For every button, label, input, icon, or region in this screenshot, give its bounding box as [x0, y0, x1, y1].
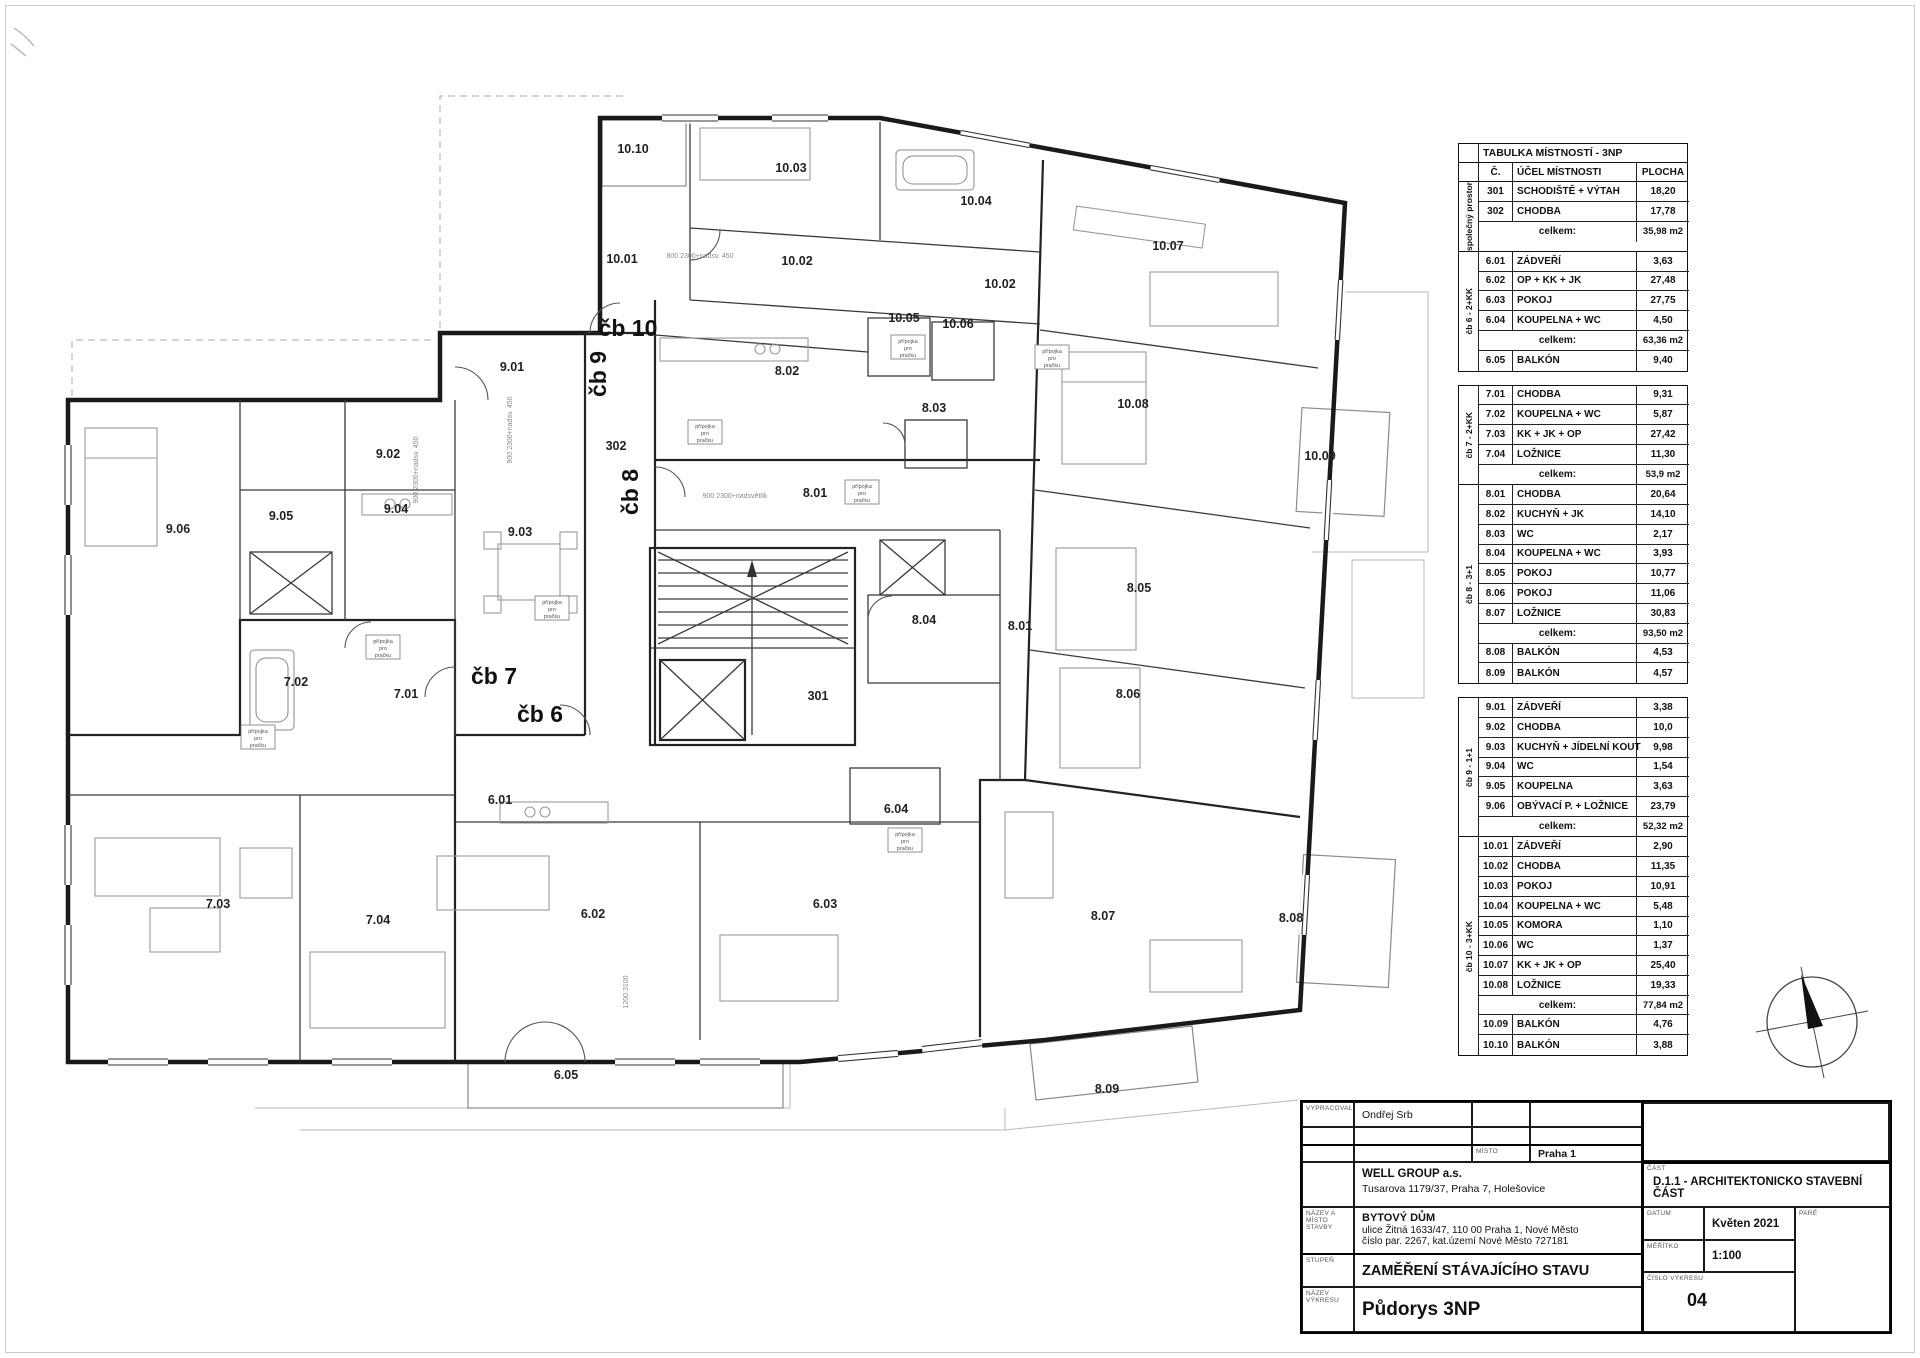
room-number: 10.08: [1479, 976, 1513, 995]
svg-text:pro: pro: [858, 491, 866, 497]
vykres-label: NÁZEV VÝKRESU: [1302, 1287, 1354, 1332]
room-label: 6.05: [554, 1068, 578, 1082]
table-row: 8.01CHODBA20,64: [1479, 485, 1689, 505]
furniture: [85, 128, 1278, 1028]
room-number: 8.03: [1479, 525, 1513, 544]
room-area: 10,0: [1637, 718, 1689, 737]
room-area: 11,06: [1637, 584, 1689, 603]
subtotal-value: 53,9 m2: [1637, 465, 1689, 485]
room-label: 9.05: [269, 509, 293, 523]
subtotal-value: 93,50 m2: [1637, 624, 1689, 643]
interior-walls: [68, 160, 1300, 1062]
dimension-text: 900 2300+nadsv. 450: [507, 396, 514, 463]
room-area: 17,78: [1637, 202, 1689, 221]
north-compass-icon: [1756, 967, 1868, 1078]
empty-cell: [1530, 1102, 1642, 1127]
room-number: 8.04: [1479, 545, 1513, 564]
table-row: 10.03POKOJ10,91: [1479, 877, 1689, 897]
table-row: 7.01CHODBA9,31: [1479, 386, 1689, 406]
empty-cell: [1302, 1127, 1354, 1145]
svg-text:pračku: pračku: [897, 846, 914, 852]
empty-cell: [1302, 1145, 1354, 1162]
stavba-address2: číslo par. 2267, kat.území Nové Město 72…: [1362, 1236, 1641, 1247]
table-row: 6.04KOUPELNA + WC4,50: [1479, 311, 1689, 331]
table-row: 9.01ZÁDVEŘÍ3,38: [1479, 698, 1689, 718]
room-number: 8.08: [1479, 644, 1513, 663]
room-label: 302: [606, 439, 627, 453]
door-swings: [345, 230, 905, 1062]
shafts: [250, 540, 945, 614]
col-header: Č.: [1479, 163, 1513, 182]
drawing-sheet: přípojkapropračkupřípojkapropračkupřípoj…: [0, 0, 1920, 1358]
svg-text:přípojka: přípojka: [898, 339, 919, 345]
vykres-value: Půdorys 3NP: [1354, 1287, 1642, 1332]
room-purpose: SCHODIŠTĚ + VÝTAH: [1513, 182, 1637, 201]
subtotal-value: 77,84 m2: [1637, 996, 1689, 1015]
room-label: 10.07: [1152, 239, 1183, 253]
room-label: 10.08: [1117, 397, 1148, 411]
room-number: 9.02: [1479, 718, 1513, 737]
room-number: 10.06: [1479, 936, 1513, 955]
room-area: 2,90: [1637, 837, 1689, 856]
room-purpose: KK + JK + OP: [1513, 956, 1637, 975]
room-number: 9.04: [1479, 758, 1513, 777]
table-row: 6.01ZÁDVEŘÍ3,63: [1479, 252, 1689, 272]
subtotal-row: celkem:35,98 m2: [1479, 222, 1689, 242]
table-row: 301SCHODIŠTĚ + VÝTAH18,20: [1479, 182, 1689, 202]
fixture-note: přípojkapropračku: [366, 635, 400, 659]
stavba-label: NÁZEV A MÍSTO STAVBY: [1302, 1207, 1354, 1254]
unit-label: čb 10: [599, 315, 658, 341]
room-label: 9.03: [508, 525, 532, 539]
room-number: 10.07: [1479, 956, 1513, 975]
room-label: 8.06: [1116, 687, 1140, 701]
cast-value: D.1.1 - ARCHITEKTONICKO STAVEBNÍ ČÁST: [1653, 1176, 1889, 1200]
room-number: 302: [1479, 202, 1513, 221]
subtotal-label: celkem:: [1479, 222, 1637, 242]
room-number: 7.02: [1479, 405, 1513, 424]
table-row: 8.09BALKÓN4,57: [1479, 663, 1689, 683]
dimension-text: 900 2300+nadsv. 450: [413, 436, 420, 503]
group-rows: 8.01CHODBA20,648.02KUCHYŇ + JK14,108.03W…: [1479, 485, 1689, 683]
room-area: 9,31: [1637, 386, 1689, 405]
fixture-note: přípojkapropračku: [688, 420, 722, 444]
room-area: 10,91: [1637, 877, 1689, 896]
room-purpose: POKOJ: [1513, 291, 1637, 310]
room-purpose: BALKÓN: [1513, 1015, 1637, 1034]
room-area: 11,30: [1637, 445, 1689, 464]
room-area: 30,83: [1637, 604, 1689, 623]
room-number: 8.05: [1479, 564, 1513, 583]
dimension-text: 1200 3100: [623, 975, 630, 1008]
meritko-label: MĚŘÍTKO: [1642, 1240, 1704, 1272]
group-label-cell: čb 7 - 2+KK: [1459, 386, 1479, 485]
fixture-note: přípojkapropračku: [241, 725, 275, 749]
fixture-note: přípojkapropračku: [888, 828, 922, 852]
room-label: 7.01: [394, 687, 418, 701]
room-area: 27,42: [1637, 425, 1689, 444]
room-purpose: KUCHYŇ + JÍDELNÍ KOUT: [1513, 738, 1637, 757]
room-label: 8.02: [775, 364, 799, 378]
room-area: 27,48: [1637, 272, 1689, 291]
room-purpose: BALKÓN: [1513, 644, 1637, 663]
subtotal-label: celkem:: [1479, 624, 1637, 643]
group-rows: 301SCHODIŠTĚ + VÝTAH18,20302CHODBA17,78c…: [1479, 182, 1689, 251]
room-area: 3,63: [1637, 252, 1689, 271]
room-area: 2,17: [1637, 525, 1689, 544]
room-area: 1,54: [1637, 758, 1689, 777]
room-number: 9.03: [1479, 738, 1513, 757]
room-area: 4,50: [1637, 311, 1689, 330]
vypracoval-label: VYPRACOVAL: [1302, 1102, 1354, 1127]
table-group: společný prostor301SCHODIŠTĚ + VÝTAH18,2…: [1458, 181, 1688, 252]
fixture-note: přípojkapropračku: [535, 596, 569, 620]
room-number: 10.10: [1479, 1035, 1513, 1055]
room-label: 8.04: [912, 613, 936, 627]
empty-cell: [1354, 1127, 1472, 1145]
investor-cell: WELL GROUP a.s. Tusarova 1179/37, Praha …: [1354, 1162, 1642, 1207]
table-row: 8.06POKOJ11,06: [1479, 584, 1689, 604]
datum-value: Květen 2021: [1704, 1207, 1795, 1240]
room-area: 5,48: [1637, 897, 1689, 916]
room-label: 7.04: [366, 913, 390, 927]
table-row: 10.05KOMORA1,10: [1479, 917, 1689, 937]
table-row: 7.02KOUPELNA + WC5,87: [1479, 405, 1689, 425]
room-purpose: KOUPELNA + WC: [1513, 545, 1637, 564]
room-area: 9,98: [1637, 738, 1689, 757]
room-purpose: CHODBA: [1513, 202, 1637, 221]
table-row: 10.04KOUPELNA + WC5,48: [1479, 897, 1689, 917]
room-area: 3,38: [1637, 698, 1689, 717]
room-number: 301: [1479, 182, 1513, 201]
svg-text:přípojka: přípojka: [852, 484, 873, 490]
group-rows: 10.01ZÁDVEŘÍ2,9010.02CHODBA11,3510.03POK…: [1479, 837, 1689, 1055]
svg-text:pro: pro: [904, 346, 912, 352]
stupen-value: ZAMĚŘENÍ STÁVAJÍCÍHO STAVU: [1354, 1254, 1642, 1287]
subtotal-label: celkem:: [1479, 331, 1637, 350]
svg-text:pračku: pračku: [697, 438, 714, 444]
table-row: 10.08LOŽNICE19,33: [1479, 976, 1689, 996]
room-area: 1,10: [1637, 917, 1689, 936]
table-row: 6.03POKOJ27,75: [1479, 291, 1689, 311]
room-label: 10.06: [942, 317, 973, 331]
cislo-value: 04: [1687, 1290, 1794, 1311]
room-label: 10.04: [960, 194, 991, 208]
room-purpose: POKOJ: [1513, 584, 1637, 603]
room-label: 6.01: [488, 793, 512, 807]
room-area: 27,75: [1637, 291, 1689, 310]
room-label: 10.10: [617, 142, 648, 156]
room-purpose: WC: [1513, 936, 1637, 955]
svg-text:pro: pro: [548, 607, 556, 613]
subtotal-row: celkem:53,9 m2: [1479, 465, 1689, 485]
room-label: 8.05: [1127, 581, 1151, 595]
room-area: 9,40: [1637, 351, 1689, 371]
room-purpose: OBÝVACÍ P. + LOŽNICE: [1513, 797, 1637, 816]
room-purpose: ZÁDVEŘÍ: [1513, 837, 1637, 856]
room-number: 7.04: [1479, 445, 1513, 464]
room-number: 10.05: [1479, 917, 1513, 936]
stavba-cell: BYTOVÝ DŮM ulice Žitná 1633/47, 110 00 P…: [1354, 1207, 1642, 1254]
room-label: 8.03: [922, 401, 946, 415]
investor-name: WELL GROUP a.s.: [1362, 1168, 1641, 1180]
scan-artifact: [11, 28, 34, 56]
room-label: 7.02: [284, 675, 308, 689]
svg-text:přípojka: přípojka: [895, 832, 916, 838]
misto-value: Praha 1: [1530, 1145, 1642, 1162]
cast-label: ČÁST: [1647, 1165, 1889, 1172]
table-group: čb 10 - 3+KK10.01ZÁDVEŘÍ2,9010.02CHODBA1…: [1458, 836, 1688, 1056]
table-row: 7.03KK + JK + OP27,42: [1479, 425, 1689, 445]
investor-address: Tusarova 1179/37, Praha 7, Holešovice: [1362, 1183, 1641, 1195]
table-group: čb 7 - 2+KK7.01CHODBA9,317.02KOUPELNA + …: [1458, 385, 1688, 486]
col-header: ÚČEL MÍSTNOSTI: [1513, 163, 1637, 182]
room-number: 8.02: [1479, 505, 1513, 524]
unit-label: čb 7: [471, 663, 517, 689]
room-number: 10.09: [1479, 1015, 1513, 1034]
room-purpose: WC: [1513, 758, 1637, 777]
room-number: 8.01: [1479, 485, 1513, 504]
room-label: 8.01: [803, 486, 827, 500]
room-area: 19,33: [1637, 976, 1689, 995]
svg-text:pračku: pračku: [375, 653, 392, 659]
table-row: 10.06WC1,37: [1479, 936, 1689, 956]
room-purpose: BALKÓN: [1513, 663, 1637, 683]
table-row: 10.02CHODBA11,35: [1479, 857, 1689, 877]
room-schedule-table: TABULKA MÍSTNOSTÍ - 3NPČ.ÚČEL MÍSTNOSTIP…: [1458, 143, 1688, 1056]
stavba-address1: ulice Žitná 1633/47, 110 00 Praha 1, Nov…: [1362, 1225, 1641, 1236]
subtotal-row: celkem:63,36 m2: [1479, 331, 1689, 351]
svg-text:pro: pro: [254, 736, 262, 742]
dimension-text: 800 2300+nadsv. 450: [666, 253, 733, 260]
room-purpose: KOUPELNA + WC: [1513, 897, 1637, 916]
divider: [1641, 1102, 1644, 1332]
table-row: 6.02OP + KK + JK27,48: [1479, 272, 1689, 292]
cislo-cell: ČÍSLO VÝKRESU 04: [1642, 1272, 1795, 1332]
svg-text:pro: pro: [379, 646, 387, 652]
empty-cell: [1472, 1102, 1530, 1127]
room-number: 9.01: [1479, 698, 1513, 717]
divider: [1302, 1144, 1642, 1146]
meritko-value: 1:100: [1704, 1240, 1795, 1272]
room-number: 8.09: [1479, 663, 1513, 683]
room-purpose: CHODBA: [1513, 386, 1637, 405]
table-row: 9.04WC1,54: [1479, 758, 1689, 778]
unit-label: čb 8: [617, 469, 643, 515]
svg-text:přípojka: přípojka: [373, 639, 394, 645]
table-row: 7.04LOŽNICE11,30: [1479, 445, 1689, 465]
table-group: čb 9 - 1+19.01ZÁDVEŘÍ3,389.02CHODBA10,09…: [1458, 697, 1688, 838]
empty-cell: [1302, 1162, 1354, 1207]
room-label: 10.02: [984, 277, 1015, 291]
svg-text:pračku: pračku: [250, 743, 267, 749]
svg-text:pračku: pračku: [854, 498, 871, 504]
room-label: 10.03: [775, 161, 806, 175]
room-purpose: ZÁDVEŘÍ: [1513, 698, 1637, 717]
divider: [1302, 1253, 1642, 1255]
table-row: 10.01ZÁDVEŘÍ2,90: [1479, 837, 1689, 857]
fixture-note: přípojkapropračku: [845, 480, 879, 504]
room-number: 6.02: [1479, 272, 1513, 291]
room-area: 3,93: [1637, 545, 1689, 564]
room-area: 23,79: [1637, 797, 1689, 816]
subtotal-row: celkem:77,84 m2: [1479, 996, 1689, 1016]
dimension-text: 900 2300+nadsvětlík: [703, 493, 768, 500]
room-number: 8.06: [1479, 584, 1513, 603]
room-number: 6.05: [1479, 351, 1513, 371]
room-number: 6.01: [1479, 252, 1513, 271]
table-row: 302CHODBA17,78: [1479, 202, 1689, 222]
room-number: 9.05: [1479, 777, 1513, 796]
group-rows: 7.01CHODBA9,317.02KOUPELNA + WC5,877.03K…: [1479, 386, 1689, 485]
room-label: 10.01: [606, 252, 637, 266]
svg-text:pračku: pračku: [544, 614, 561, 620]
pare-label: PARÉ: [1795, 1207, 1890, 1332]
table-header-row: Č.ÚČEL MÍSTNOSTIPLOCHA: [1458, 163, 1688, 183]
room-label: 9.06: [166, 522, 190, 536]
subtotal-value: 52,32 m2: [1637, 817, 1689, 837]
group-rows: 9.01ZÁDVEŘÍ3,389.02CHODBA10,09.03KUCHYŇ …: [1479, 698, 1689, 837]
room-number: 10.04: [1479, 897, 1513, 916]
svg-text:přípojka: přípojka: [542, 600, 563, 606]
room-number: 8.07: [1479, 604, 1513, 623]
room-purpose: OP + KK + JK: [1513, 272, 1637, 291]
room-number: 10.03: [1479, 877, 1513, 896]
room-area: 11,35: [1637, 857, 1689, 876]
svg-text:pračku: pračku: [900, 353, 917, 359]
room-area: 5,87: [1637, 405, 1689, 424]
stair-direction-arrow: [747, 560, 757, 577]
table-row: 8.07LOŽNICE30,83: [1479, 604, 1689, 624]
room-purpose: BALKÓN: [1513, 351, 1637, 371]
vypracoval-value: Ondřej Srb: [1354, 1102, 1472, 1127]
room-label: 6.03: [813, 897, 837, 911]
empty-cell: [1354, 1145, 1472, 1162]
svg-text:pro: pro: [901, 839, 909, 845]
table-row: 10.10BALKÓN3,88: [1479, 1035, 1689, 1055]
room-number: 6.04: [1479, 311, 1513, 330]
table-row: 10.09BALKÓN4,76: [1479, 1015, 1689, 1035]
table-title-row: TABULKA MÍSTNOSTÍ - 3NP: [1458, 143, 1688, 163]
table-row: 6.05BALKÓN9,40: [1479, 351, 1689, 371]
room-purpose: CHODBA: [1513, 485, 1637, 504]
svg-text:přípojka: přípojka: [248, 729, 269, 735]
svg-text:pračku: pračku: [1044, 363, 1061, 369]
room-purpose: KOUPELNA: [1513, 777, 1637, 796]
table-row: 8.02KUCHYŇ + JK14,10: [1479, 505, 1689, 525]
room-label: 7.03: [206, 897, 230, 911]
table-title: TABULKA MÍSTNOSTÍ - 3NP: [1479, 144, 1689, 162]
unit-label: čb 9: [585, 351, 611, 397]
room-number: 7.01: [1479, 386, 1513, 405]
svg-text:přípojka: přípojka: [695, 424, 716, 430]
room-label: 8.09: [1095, 1082, 1119, 1096]
svg-text:přípojka: přípojka: [1042, 349, 1063, 355]
subtotal-value: 63,36 m2: [1637, 331, 1689, 350]
room-label: 9.01: [500, 360, 524, 374]
room-number: 10.02: [1479, 857, 1513, 876]
room-purpose: LOŽNICE: [1513, 604, 1637, 623]
misto-label: MÍSTO: [1472, 1145, 1530, 1162]
room-area: 1,37: [1637, 936, 1689, 955]
room-area: 10,77: [1637, 564, 1689, 583]
group-label-cell: čb 10 - 3+KK: [1459, 837, 1479, 1055]
table-row: 10.07KK + JK + OP25,40: [1479, 956, 1689, 976]
room-label: 10.02: [781, 254, 812, 268]
room-label: 9.02: [376, 447, 400, 461]
room-area: 20,64: [1637, 485, 1689, 504]
room-label: 10.05: [888, 311, 919, 325]
room-label: 301: [808, 689, 829, 703]
empty-cell: [1530, 1127, 1642, 1145]
group-label-cell: čb 6 - 2+KK: [1459, 252, 1479, 371]
subtotal-label: celkem:: [1479, 817, 1637, 837]
room-area: 3,88: [1637, 1035, 1689, 1055]
room-purpose: POKOJ: [1513, 877, 1637, 896]
room-label: 6.02: [581, 907, 605, 921]
room-area: 14,10: [1637, 505, 1689, 524]
room-number: 10.01: [1479, 837, 1513, 856]
group-label-cell: společný prostor: [1459, 182, 1479, 251]
table-group: čb 6 - 2+KK6.01ZÁDVEŘÍ3,636.02OP + KK + …: [1458, 251, 1688, 372]
svg-text:pro: pro: [1048, 356, 1056, 362]
svg-text:pro: pro: [701, 431, 709, 437]
room-area: 4,57: [1637, 663, 1689, 683]
room-purpose: CHODBA: [1513, 857, 1637, 876]
room-purpose: LOŽNICE: [1513, 976, 1637, 995]
fixture-note: přípojkapropračku: [1035, 345, 1069, 369]
col-header: PLOCHA: [1637, 163, 1689, 182]
room-area: 18,20: [1637, 182, 1689, 201]
subtotal-row: celkem:93,50 m2: [1479, 624, 1689, 644]
group-label-cell: čb 8 - 3+1: [1459, 485, 1479, 683]
table-row: 8.08BALKÓN4,53: [1479, 644, 1689, 664]
context-outlines: [72, 96, 1428, 1130]
group-label-cell: čb 9 - 1+1: [1459, 698, 1479, 837]
room-label: 8.08: [1279, 911, 1303, 925]
room-purpose: KOMORA: [1513, 917, 1637, 936]
table-row: 8.05POKOJ10,77: [1479, 564, 1689, 584]
room-label: 10.09: [1304, 449, 1335, 463]
room-purpose: BALKÓN: [1513, 1035, 1637, 1055]
room-area: 25,40: [1637, 956, 1689, 975]
room-number: 7.03: [1479, 425, 1513, 444]
room-purpose: KOUPELNA + WC: [1513, 405, 1637, 424]
divider: [1642, 1161, 1890, 1164]
room-purpose: KK + JK + OP: [1513, 425, 1637, 444]
room-number: 9.06: [1479, 797, 1513, 816]
room-purpose: CHODBA: [1513, 718, 1637, 737]
cislo-label: ČÍSLO VÝKRESU: [1647, 1275, 1794, 1282]
table-row: 8.03WC2,17: [1479, 525, 1689, 545]
table-row: 9.02CHODBA10,0: [1479, 718, 1689, 738]
fixture-note: přípojkapropračku: [891, 335, 925, 359]
room-label: 8.07: [1091, 909, 1115, 923]
room-purpose: KOUPELNA + WC: [1513, 311, 1637, 330]
group-rows: 6.01ZÁDVEŘÍ3,636.02OP + KK + JK27,486.03…: [1479, 252, 1689, 371]
datum-label: DATUM: [1642, 1207, 1704, 1240]
subtotal-value: 35,98 m2: [1637, 222, 1689, 242]
unit-label: čb 6: [517, 701, 563, 727]
table-group: čb 8 - 3+18.01CHODBA20,648.02KUCHYŇ + JK…: [1458, 484, 1688, 684]
room-purpose: ZÁDVEŘÍ: [1513, 252, 1637, 271]
room-area: 4,76: [1637, 1015, 1689, 1034]
room-area: 4,53: [1637, 644, 1689, 663]
apartment-unit-labels: čb 10čb 9čb 8čb 7čb 6: [471, 315, 657, 727]
room-number: 6.03: [1479, 291, 1513, 310]
room-purpose: KUCHYŇ + JK: [1513, 505, 1637, 524]
room-purpose: WC: [1513, 525, 1637, 544]
